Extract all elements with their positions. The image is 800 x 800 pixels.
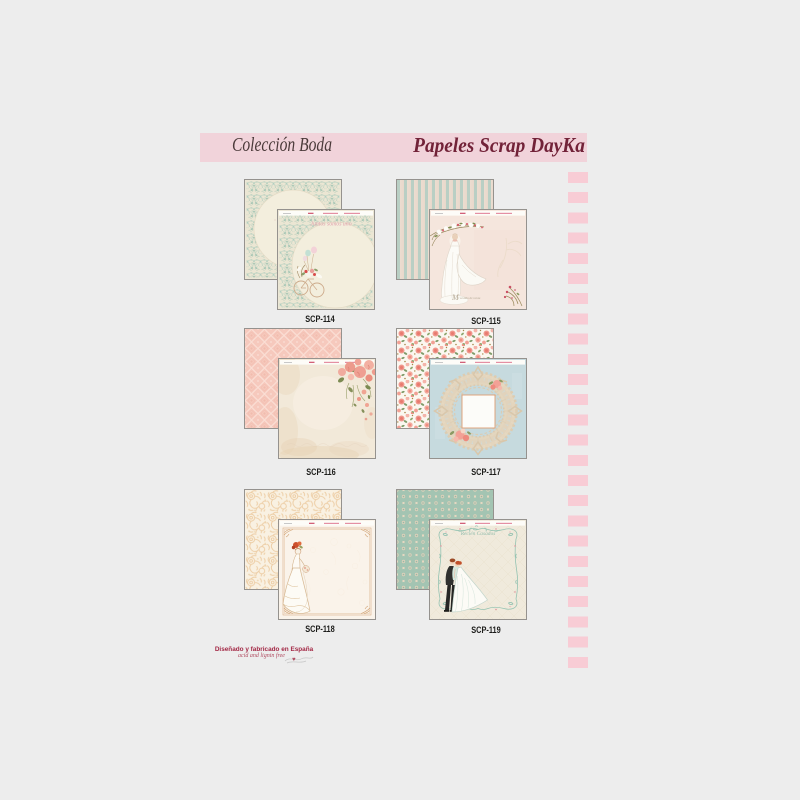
svg-text:Recién Casados: Recién Casados (460, 531, 496, 537)
svg-text:♥: ♥ (292, 657, 296, 663)
svg-text:Juntos somos uno: Juntos somos uno (310, 222, 351, 228)
svg-text:i vestido de novia: i vestido de novia (458, 296, 481, 300)
